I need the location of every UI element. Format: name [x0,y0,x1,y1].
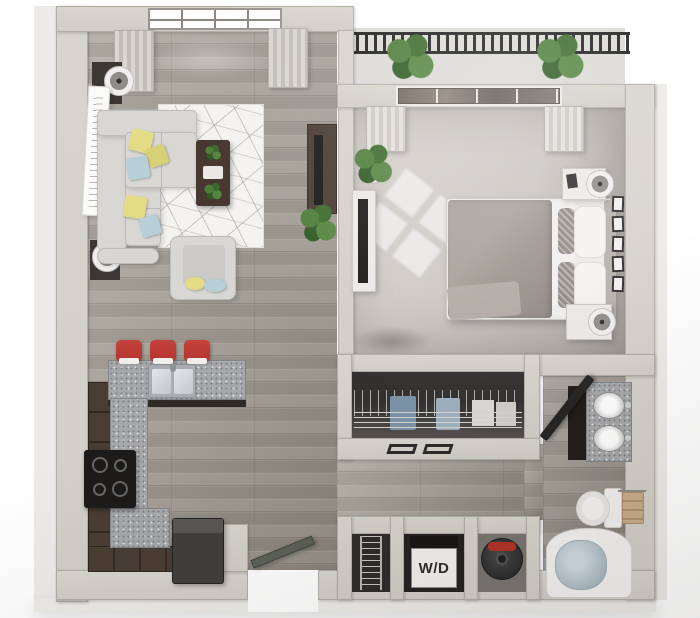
utility-wall-1 [337,516,352,600]
bed-pillow [574,206,606,258]
armchair [170,236,236,300]
living-curtain-right [268,28,308,88]
faucet-icon [625,435,631,441]
picture-frame-icon [612,236,625,252]
sink-basin [174,369,193,394]
picture-frame-icon [612,216,625,232]
throw-pillow-blue [204,279,226,292]
table-lamp-icon [586,170,614,198]
wire-shelving-rack [360,536,382,590]
picture-frame-icon [612,256,625,272]
kitchen-counter-south [110,508,170,548]
bedroom-plant-icon [352,142,394,190]
burner-icon [114,459,127,472]
refrigerator [172,518,224,584]
entry-nook-wall [222,524,248,572]
appliance-top [410,536,458,548]
bathroom-north-wall [524,354,655,376]
table-plant-icon [203,182,223,202]
bedroom-corner-shadow [352,326,432,356]
living-window [148,8,282,30]
bed-accent-pillow [558,208,575,254]
faucet-icon [625,402,631,408]
picture-frame-icon [612,196,625,212]
left-wall-outer-face [34,6,58,602]
bathtub-water [555,540,607,590]
tv-icon [314,135,323,205]
toilet-bowl [576,491,610,526]
sink-basin [152,369,171,394]
bar-stool-seat [187,358,207,364]
coffee-table [196,140,230,206]
living-plant-icon [298,202,338,248]
washer-dryer-niche: W/D [404,534,464,592]
table-lamp-icon [588,308,616,336]
cooktop [84,450,136,508]
throw-pillow-yellow [185,277,205,290]
sofa-arm [97,248,159,264]
balcony-plant-icon [383,32,437,86]
right-wall-outer-face [655,84,667,600]
bedroom-curtain-right [544,106,584,152]
left-wall [56,6,88,602]
closet-east-wall [524,354,540,444]
bed-accent-pillow [558,262,575,308]
living-window-light-patch [150,36,270,80]
utility-wall-2 [390,516,404,600]
utility-shelving-niche [352,534,390,592]
living-tv-console [307,124,337,214]
burner-icon [112,481,128,497]
entry-door-opening [248,570,318,612]
utility-top-wall [337,516,540,534]
utility-wall-4 [526,516,540,600]
water-heater-cap [496,553,508,565]
wire-shelf [354,412,522,432]
vanity-counter [586,382,632,462]
refrigerator-top-face [173,519,223,533]
washer-dryer-label: W/D [411,548,457,588]
bedroom-window [396,86,562,106]
picture-frame-icon [612,276,625,292]
burner-icon [93,483,106,496]
tv-icon [358,199,368,283]
balcony-plant-icon [533,32,587,86]
floor-plan-scene: W/D [0,0,700,618]
bar-stool-seat [153,358,173,364]
hallway-floor [337,458,543,520]
throw-pillow-blue [125,155,150,180]
closet-door-handle [422,444,453,454]
bathtub [546,528,632,598]
towels [622,492,644,524]
table-tray [203,166,223,179]
vanity-sink [593,392,625,419]
bar-stool-seat [119,358,139,364]
closet-north-wall [337,354,540,372]
water-heater-label [488,542,516,551]
utility-wall-3 [464,516,478,600]
closet-interior [352,372,524,438]
closet-door-handle [386,444,417,454]
bed-throw-fold [447,281,522,321]
picture-frame-icon [566,173,578,188]
burner-icon [92,457,108,473]
table-plant-icon [204,144,222,162]
throw-pillow-yellow [122,194,147,219]
bottom-wall-outer-face [34,598,656,612]
kitchen-sink [148,364,196,398]
vanity-sink [593,425,625,452]
water-heater-niche [478,534,526,592]
bedroom-tv-console [352,190,376,292]
